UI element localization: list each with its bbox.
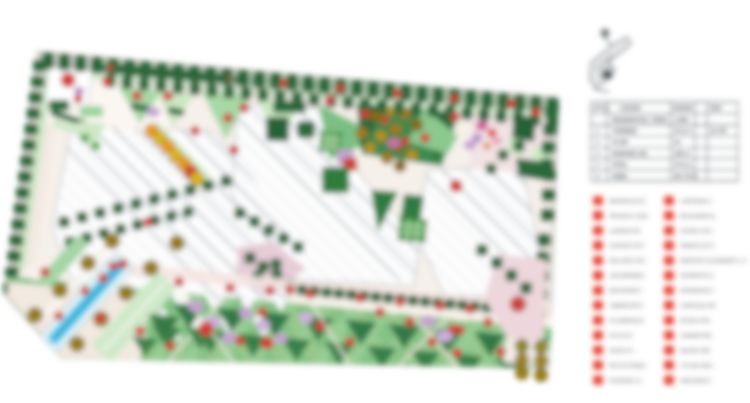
svg-text:48 779 m: 48 779 m xyxy=(674,174,698,180)
svg-text:ACER PL.: ACER PL. xyxy=(609,348,636,354)
svg-text:RESIDENTIAL TWNH: RESIDENTIAL TWNH xyxy=(612,118,668,124)
svg-text:LANTANA C.: LANTANA C. xyxy=(680,199,714,205)
svg-text:CASSIA FIST.: CASSIA FIST. xyxy=(609,244,645,250)
svg-text:HIBISCUS R.: HIBISCUS R. xyxy=(680,244,715,250)
svg-text:BOUGAINVIL.: BOUGAINVIL. xyxy=(680,214,717,220)
svg-text:TOWNER: TOWNER xyxy=(612,129,637,135)
svg-text:27x1 h: 27x1 h xyxy=(674,129,692,135)
svg-text:PHOENIX D.: PHOENIX D. xyxy=(609,378,643,384)
svg-text:MURRAYA P.: MURRAYA P. xyxy=(680,289,715,295)
svg-text:5: 5 xyxy=(596,174,599,180)
svg-text:PRUNUS CER.: PRUNUS CER. xyxy=(609,214,649,220)
svg-text:NERIUM OLEANDER 1-2: NERIUM OLEANDER 1-2 xyxy=(680,259,746,265)
svg-text:CYCAS REV.: CYCAS REV. xyxy=(680,363,715,369)
svg-text:PARK: PARK xyxy=(612,174,627,180)
svg-text:FICUS B.: FICUS B. xyxy=(609,333,634,339)
svg-text:2: 2 xyxy=(596,140,599,146)
svg-text:TABEBUIA R.: TABEBUIA R. xyxy=(609,304,645,310)
svg-text:LAGERSTR.: LAGERSTR. xyxy=(609,229,642,235)
svg-text:1-800: 1-800 xyxy=(674,118,688,124)
svg-text:CARISSA GR.: CARISSA GR. xyxy=(680,304,717,310)
svg-text:BAUHINIA P.: BAUHINIA P. xyxy=(609,289,643,295)
svg-text:CANNA IND.: CANNA IND. xyxy=(680,333,714,339)
svg-text:4u: 4u xyxy=(674,140,681,146)
svg-text:ROYSTONEA: ROYSTONEA xyxy=(609,363,645,369)
svg-text:198 st: 198 st xyxy=(674,151,690,157)
svg-text:AGAVE AM.: AGAVE AM. xyxy=(680,348,712,354)
svg-text:MAGNOLIA G.: MAGNOLIA G. xyxy=(609,199,647,205)
svg-text:CLUB: CLUB xyxy=(612,140,628,146)
svg-text:JACARANDA: JACARANDA xyxy=(609,274,644,280)
svg-text:LEGEND: LEGEND xyxy=(620,106,641,112)
svg-text:ROSA HYB.: ROSA HYB. xyxy=(680,319,712,325)
svg-text:POOL: POOL xyxy=(612,163,628,169)
svg-text:3: 3 xyxy=(596,151,599,157)
svg-text:REM: REM xyxy=(710,106,721,112)
svg-text:1: 1 xyxy=(596,129,599,135)
svg-text:IXORA COC.: IXORA COC. xyxy=(680,229,714,235)
svg-text:A1 PR: A1 PR xyxy=(710,129,726,135)
svg-text:WASHINGT.: WASHINGT. xyxy=(680,378,712,384)
svg-text:DURANTA G.: DURANTA G. xyxy=(680,274,715,280)
svg-text:STYLE: STYLE xyxy=(593,106,610,112)
svg-text:PLUMERIA A.: PLUMERIA A. xyxy=(609,319,645,325)
svg-text:DELONIX RG.: DELONIX RG. xyxy=(609,259,647,265)
svg-text:SIZE/M2: SIZE/M2 xyxy=(673,106,693,112)
svg-text:37x1 p: 37x1 p xyxy=(674,163,692,169)
svg-text:PARKING SQ: PARKING SQ xyxy=(612,151,648,157)
